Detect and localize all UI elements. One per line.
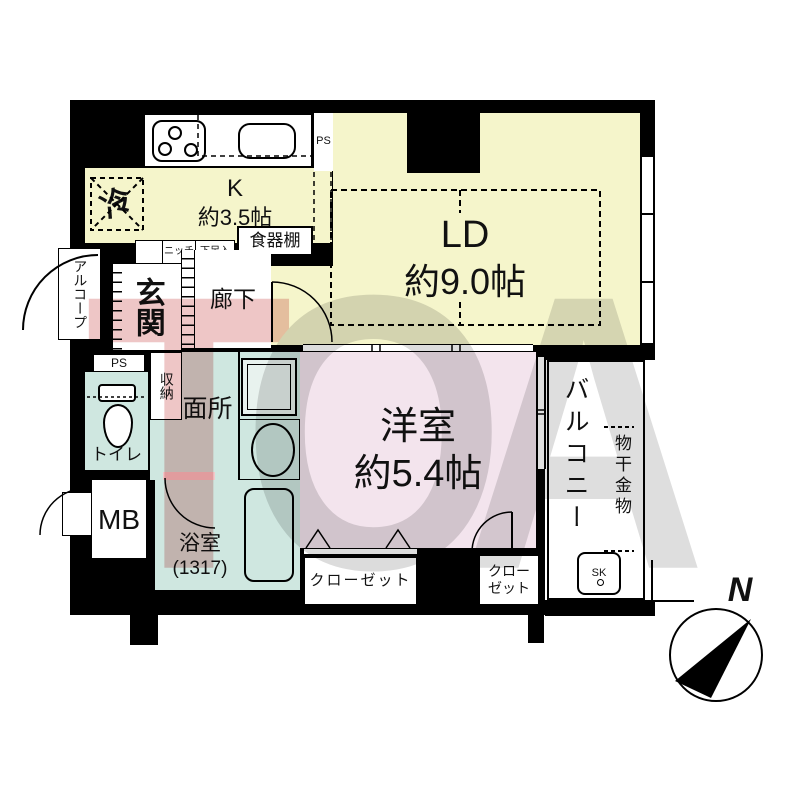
- toilet-room: トイレ: [85, 372, 148, 470]
- storage: 収納: [150, 352, 182, 420]
- toilet-tank-icon: [98, 384, 136, 402]
- kitchen-label: K: [227, 174, 243, 204]
- meter-box-label: MB: [98, 502, 140, 537]
- toilet-label: トイレ: [91, 444, 142, 465]
- floorplan: PS 冷 K 約3.5帖 LD 約9.0帖 食器棚 ニッチ 下足入 アルコープ …: [0, 0, 800, 800]
- stove-burner-icon: [158, 142, 172, 156]
- hallway: 廊下: [195, 250, 271, 348]
- north-label: N: [728, 569, 753, 612]
- entrance-tile-marks: [113, 264, 122, 350]
- western-label: 洋室: [380, 404, 456, 452]
- western-label-block: 洋室 約5.4帖: [300, 388, 536, 514]
- bathtub-icon: [244, 488, 294, 582]
- slop-sink-icon: SK: [577, 552, 621, 595]
- sink-icon: [238, 123, 296, 159]
- bathroom: 浴室 (1317): [155, 480, 300, 590]
- niche-empty-cell: [136, 241, 163, 263]
- storage-label: 収納: [157, 372, 175, 400]
- pipe-space-top-label: PS: [314, 113, 333, 171]
- wall-balcony-top: [545, 345, 655, 360]
- western-balcony-window: [536, 357, 546, 469]
- closet-left: クローゼット: [303, 556, 418, 606]
- ld-top-wall-protrusion: [407, 113, 480, 173]
- closet-right-label-2: ゼット: [488, 580, 530, 598]
- washing-machine-icon: [241, 358, 297, 416]
- toilet-label-wrap: トイレ: [85, 444, 148, 466]
- laundry-hardware-label: 物干金物: [609, 434, 634, 518]
- stove-burner-icon: [184, 143, 198, 157]
- bath-label-block: 浴室 (1317): [160, 528, 240, 584]
- closet-right: クロー ゼット: [478, 554, 540, 606]
- hallway-label: 廊下: [210, 285, 256, 314]
- closet-right-label-1: クロー: [488, 563, 530, 581]
- left-wall-door: [62, 492, 92, 536]
- ld-label: LD: [441, 212, 490, 260]
- north-label-wrap: N: [718, 568, 762, 612]
- wall-stub-left: [130, 615, 158, 645]
- toilet-bowl-icon: [103, 404, 133, 448]
- pipe-space-top: PS: [314, 113, 333, 171]
- ld-size-label: 約9.0帖: [404, 259, 526, 304]
- washbasin-icon: [251, 423, 295, 477]
- wall-balcony-bottom: [545, 600, 655, 616]
- closet-track: [303, 548, 418, 555]
- pipe-space-left: PS: [93, 354, 145, 372]
- slop-sink-drain: [597, 579, 604, 586]
- cupboard-label: 食器棚: [250, 230, 301, 251]
- bath-threshold: [163, 472, 215, 480]
- closet-left-label: クローゼット: [309, 572, 411, 591]
- western-size-label: 約5.4帖: [354, 451, 483, 499]
- balcony: バルコニー 物干金物 SK: [547, 360, 645, 600]
- balcony-label: バルコニー: [557, 376, 593, 536]
- entrance: 玄関: [113, 264, 181, 350]
- alcove-label: アルコープ: [71, 259, 89, 329]
- stove-burner-icon: [168, 126, 182, 140]
- kitchen-label-block: K 約3.5帖: [160, 172, 310, 234]
- ld-label-block: LD 約9.0帖: [340, 193, 590, 323]
- wall-stub-right: [528, 615, 544, 643]
- entrance-label: 玄関: [128, 277, 166, 337]
- meter-box: MB: [90, 478, 148, 560]
- refrigerator-space: 冷: [90, 177, 144, 231]
- refrigerator-label: 冷: [95, 180, 139, 227]
- washing-machine-inner: [247, 364, 291, 410]
- stove-icon: [152, 120, 206, 162]
- compass-circle: [669, 608, 763, 702]
- bath-size-label: (1317): [173, 557, 228, 581]
- ld-passage-floor: [271, 266, 333, 345]
- bath-label: 浴室: [179, 531, 221, 557]
- ld-window: [640, 157, 655, 343]
- western-ld-window: [303, 344, 533, 352]
- entrance-step: [181, 250, 195, 348]
- kitchen-counter: [143, 113, 313, 168]
- pipe-space-left-label: PS: [111, 356, 127, 371]
- alcove: アルコープ: [58, 248, 101, 340]
